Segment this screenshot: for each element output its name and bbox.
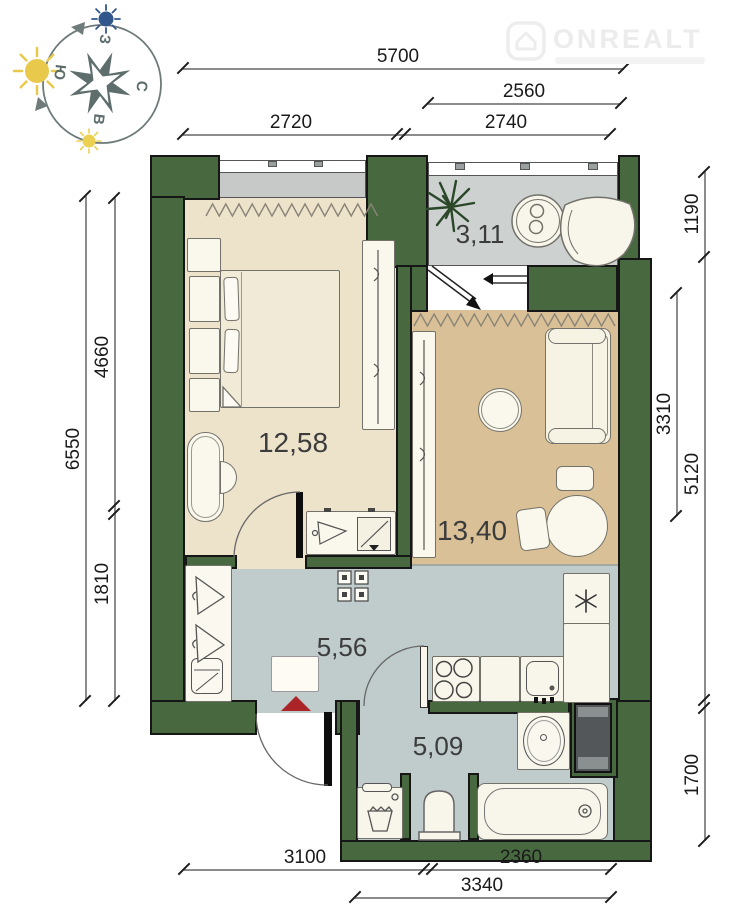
compass-letter-east: В — [86, 107, 109, 131]
watermark-brand: ONREALT — [553, 24, 703, 55]
bath-sink-oval-inner — [527, 720, 561, 762]
room-label-hallway: 5,56 — [292, 632, 392, 663]
dining-table — [546, 495, 608, 557]
sofa-armrest — [548, 328, 606, 344]
compass-star-inner — [71, 54, 129, 112]
fridge — [563, 573, 610, 625]
room-label-bathroom: 5,09 — [388, 731, 488, 762]
floor-plan: 3,11 12,58 13,40 5,56 5,09 5700 2560 272… — [0, 0, 750, 910]
dim-value: 5120 — [682, 444, 704, 504]
room-label-living: 13,40 — [422, 515, 522, 547]
bedroom-door-threshold — [237, 555, 305, 569]
pillow — [223, 329, 240, 373]
dim-value: 2560 — [474, 81, 574, 103]
dim-value: 5700 — [348, 46, 448, 68]
wall-right-main — [618, 258, 652, 704]
room-label-bedroom: 12,58 — [243, 427, 343, 459]
watermark-tagline-bar — [555, 57, 705, 64]
sofa-armrest — [548, 428, 606, 444]
window-mullion — [268, 161, 277, 167]
laundry-basket-tab — [362, 783, 392, 792]
wall-top-left-block — [150, 155, 220, 200]
dim-value: 1190 — [682, 184, 704, 244]
dim-value: 3100 — [255, 847, 355, 869]
kitchen-tall-counter — [563, 623, 610, 703]
bedroom-window-glazing — [218, 160, 366, 173]
dim-value: 4660 — [92, 327, 114, 387]
wall-bedroom-bottom-right — [305, 555, 412, 569]
pillow — [223, 277, 240, 321]
bathtub-inner — [484, 788, 601, 835]
room-label-balcony: 3,11 — [430, 219, 530, 250]
bedroom-door-leaf — [296, 492, 303, 558]
washing-machine-panel — [578, 707, 608, 717]
kitchen-counter — [480, 656, 520, 702]
dresser-mirror — [357, 517, 391, 551]
dining-chair — [556, 466, 594, 491]
wall-bedroom-living — [396, 265, 412, 565]
wall-balcony-right — [618, 155, 640, 267]
wall-bath-right — [613, 700, 652, 858]
wall-living-top — [527, 265, 618, 312]
compass-letter-south: Ю — [47, 60, 70, 84]
compass-letter-west: З — [92, 27, 115, 51]
bath-sink-faucet-dot — [540, 734, 547, 741]
dim-value: 1700 — [682, 745, 704, 805]
laundry-basket — [357, 787, 403, 839]
balcony-door-zone — [428, 266, 527, 312]
dim-value: 2720 — [241, 112, 341, 134]
wall-hall-bottom — [150, 700, 257, 735]
sink-basin — [526, 661, 559, 696]
bed-headboard-line — [241, 272, 242, 406]
desk-inner-line — [191, 436, 220, 518]
sun-small-icon — [77, 129, 101, 153]
pouf-inner — [481, 391, 519, 429]
faucet-mark — [534, 697, 538, 703]
window-mullion — [314, 161, 323, 167]
bedroom-wardrobe-right — [362, 240, 395, 430]
dresser-knob — [368, 508, 375, 512]
dim-value: 3340 — [432, 875, 532, 897]
wall-bath-left — [340, 700, 358, 858]
entrance-door-leaf — [324, 712, 332, 786]
sofa-back — [592, 334, 608, 438]
washing-machine-panel — [578, 757, 608, 769]
wall-left — [150, 196, 185, 735]
window-mullion — [455, 163, 465, 170]
faucet-mark — [550, 697, 554, 703]
dim-value: 1810 — [92, 554, 114, 614]
faucet-mark — [542, 698, 546, 704]
compass-arrowhead — [71, 22, 85, 35]
nightstand — [189, 276, 220, 322]
bathroom-door-leaf — [420, 646, 428, 708]
dresser-knob — [324, 508, 331, 512]
compass-rose — [0, 0, 200, 170]
onrealt-logo-icon — [505, 20, 547, 62]
shoe-cabinet — [191, 658, 223, 694]
compass-letter-north: С — [129, 74, 152, 98]
compass-arrowhead — [35, 97, 48, 111]
living-hall-boundary — [412, 564, 618, 566]
kitchen-hob-unit — [432, 656, 480, 702]
nightstand — [189, 328, 220, 374]
balcony-floor — [428, 170, 618, 266]
wardrobe-section — [187, 238, 221, 272]
bathroom-door-threshold — [358, 702, 428, 714]
dim-value: 2360 — [471, 847, 571, 869]
dim-value: 3310 — [654, 384, 676, 444]
watermark: ONREALT — [505, 20, 735, 68]
window-mullion — [588, 163, 598, 170]
dim-value: 6550 — [63, 419, 85, 479]
window-mullion — [520, 163, 530, 170]
dim-value: 2740 — [456, 112, 556, 134]
nightstand — [189, 378, 220, 412]
